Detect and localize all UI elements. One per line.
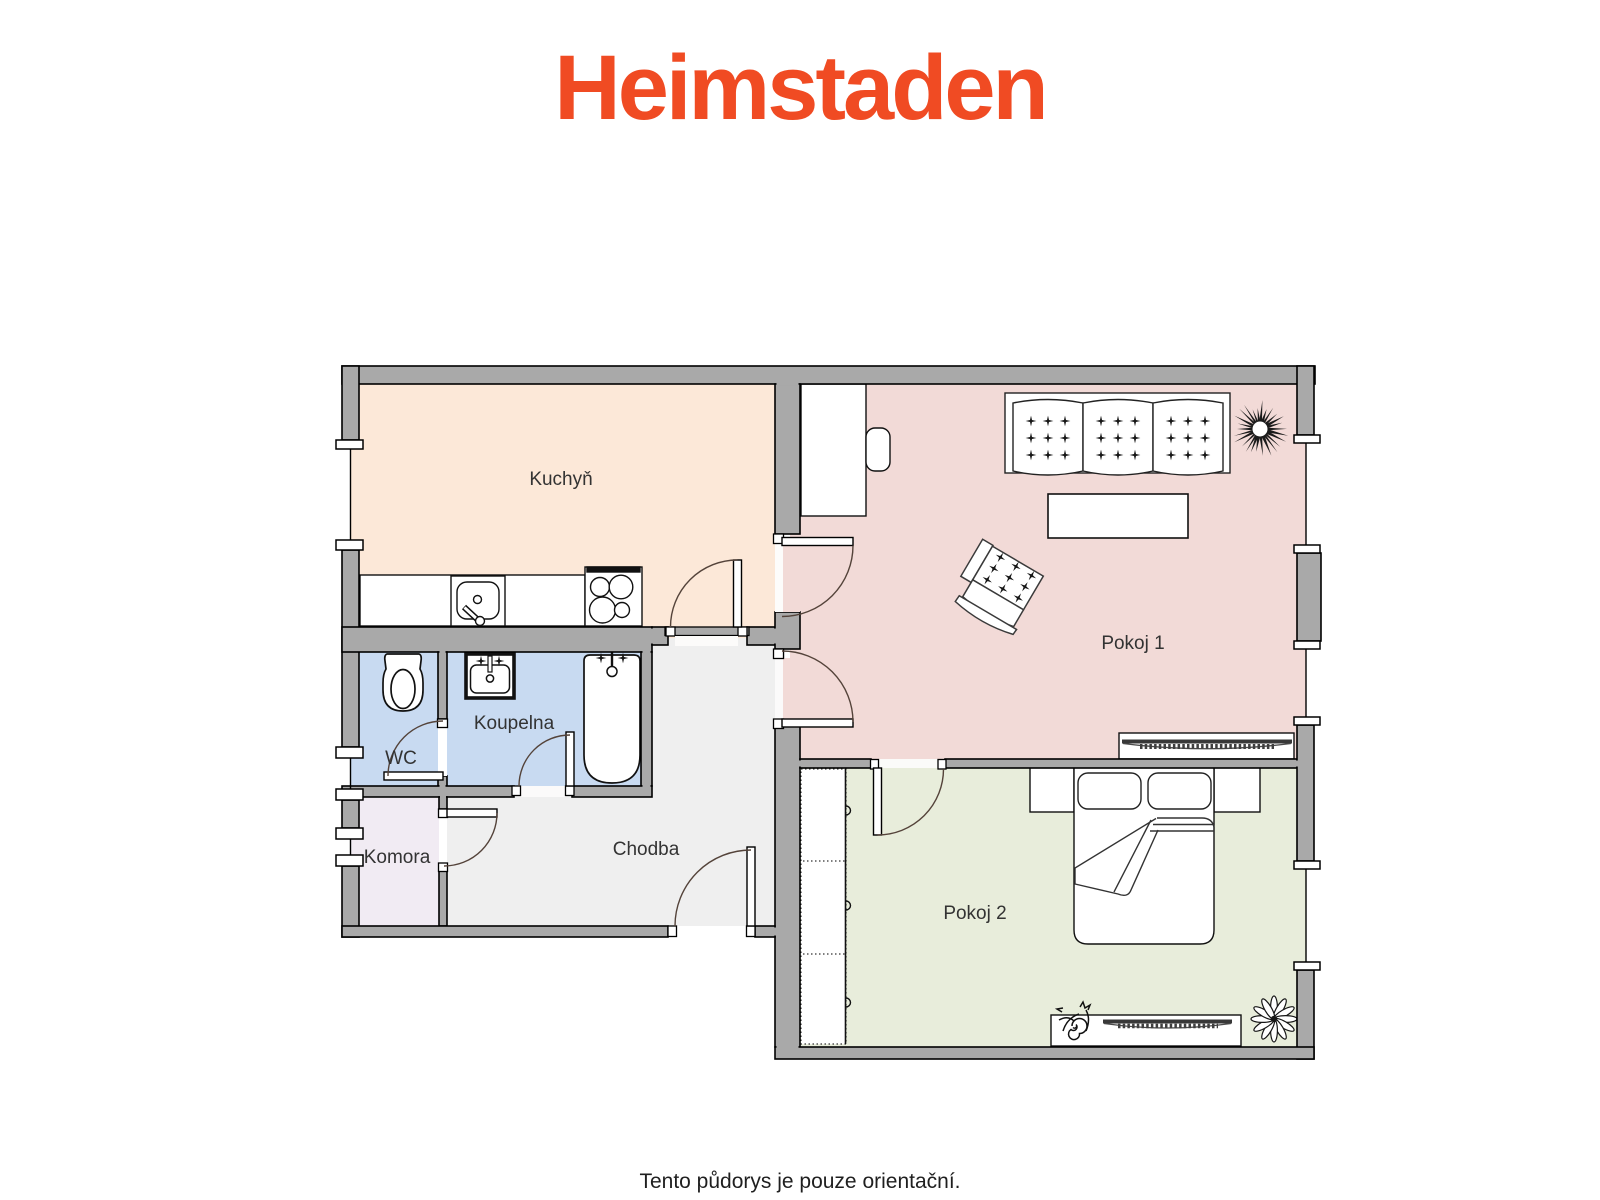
svg-text:Pokoj 2: Pokoj 2: [943, 903, 1006, 924]
svg-text:Kuchyň: Kuchyň: [529, 469, 592, 490]
svg-text:WC: WC: [385, 748, 417, 769]
svg-text:Koupelna: Koupelna: [474, 713, 555, 734]
svg-text:Chodba: Chodba: [613, 839, 680, 860]
svg-text:Pokoj 1: Pokoj 1: [1101, 633, 1164, 654]
svg-text:Komora: Komora: [364, 847, 431, 868]
